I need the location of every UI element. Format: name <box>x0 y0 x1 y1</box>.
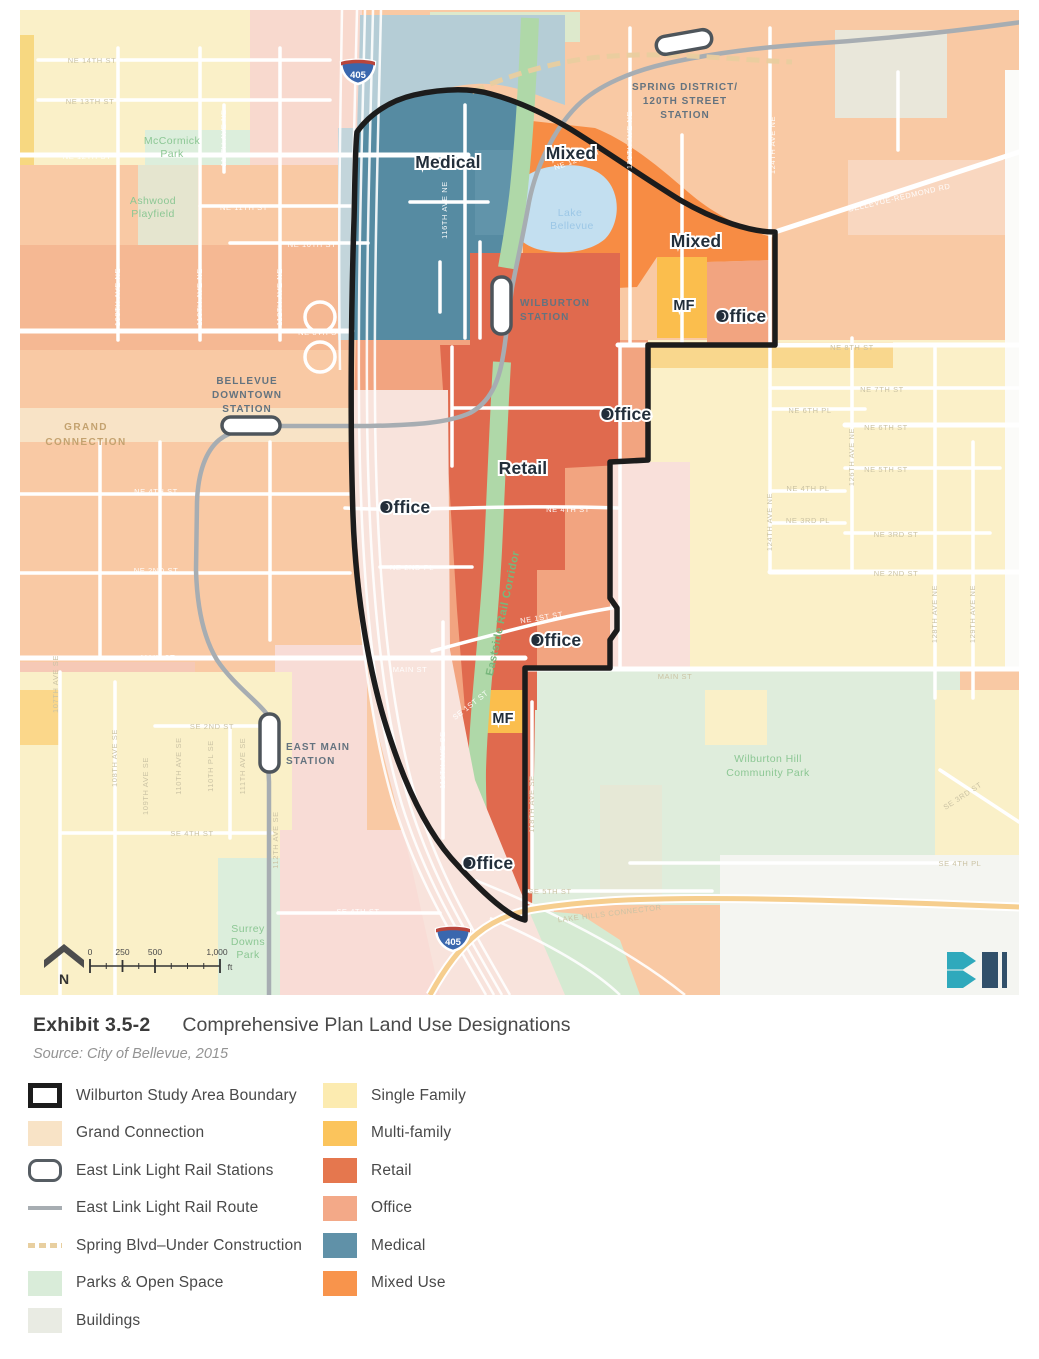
legend-label: Multi-family <box>371 1124 451 1142</box>
park-label: Downs <box>231 936 265 948</box>
legend-item-stations: East Link Light Rail Stations <box>28 1158 302 1183</box>
legend-swatch-grand-connection <box>28 1121 62 1146</box>
street-label: 108TH AVE NE <box>113 268 122 326</box>
station-label: STATION <box>520 312 569 323</box>
street-label: 116TH AVE NE <box>440 181 449 239</box>
street-label: 129TH AVE NE <box>968 585 977 643</box>
legend-label: Retail <box>371 1162 412 1180</box>
legend-item-office: Office <box>323 1196 466 1221</box>
legend-swatch-station <box>28 1159 62 1182</box>
park-label: Community Park <box>726 767 810 779</box>
legend-label: Single Family <box>371 1087 466 1105</box>
street-label: NE 11TH ST <box>220 203 268 212</box>
park-label: Playfield <box>131 208 174 220</box>
legend-swatch-retail <box>323 1158 357 1183</box>
park-label: Park <box>236 949 260 961</box>
street-label: 110TH AVE NE <box>195 268 204 326</box>
legend-swatch-buildings <box>28 1308 62 1333</box>
street-label: 118TH AVE SE <box>527 775 536 832</box>
grand-connection-label: CONNECTION <box>45 437 126 448</box>
street-label: NE 12TH ST <box>63 152 112 161</box>
street-label: NE 6TH ST <box>864 423 908 432</box>
street-label: SE 5TH ST <box>528 887 571 896</box>
legend-swatch-medical <box>323 1233 357 1258</box>
figure-caption: Exhibit 3.5-2 Comprehensive Plan Land Us… <box>33 1014 570 1037</box>
street-label: 124TH AVE NE <box>768 116 777 174</box>
street-label: NE 4TH ST <box>134 487 178 496</box>
station-label: STATION <box>286 756 335 767</box>
legend-swatch-multi-family <box>323 1121 357 1146</box>
street-label: SE 4TH ST <box>336 907 379 916</box>
shield-number: 405 <box>350 70 367 81</box>
legend-item-parks: Parks & Open Space <box>28 1271 302 1296</box>
east-main-station-marker <box>260 714 279 772</box>
park-label: Ashwood <box>130 195 176 207</box>
street-label: 110TH AVE SE <box>174 737 183 794</box>
street-label: MAIN ST <box>141 653 176 662</box>
source-note: Source: City of Bellevue, 2015 <box>33 1046 228 1062</box>
station-label: BELLEVUE <box>216 376 277 387</box>
park-label: Surrey <box>231 923 265 935</box>
street-label: 124TH AVE NE <box>765 493 774 551</box>
park-label: Park <box>160 148 184 160</box>
legend-item-single-family: Single Family <box>323 1083 466 1108</box>
scale-tick: 0 <box>88 947 93 957</box>
station-label: EAST MAIN <box>286 742 350 753</box>
grand-connection-label: GRAND <box>64 422 108 433</box>
street-label: 112TH AVE SE <box>271 811 280 868</box>
station-label: 120TH STREET <box>643 96 727 107</box>
legend-label: Buildings <box>76 1312 140 1330</box>
street-label: NE 13TH ST <box>66 97 115 106</box>
street-label: 111TH AVE NE <box>219 109 228 166</box>
wilburton-station-marker <box>492 277 511 334</box>
legend-label: Parks & Open Space <box>76 1274 224 1292</box>
shield-number: 405 <box>445 937 462 948</box>
station-label: DOWNTOWN <box>212 390 282 401</box>
street-label: SE 4TH PL <box>939 859 982 868</box>
legend-label: Office <box>371 1199 412 1217</box>
street-label: NE 3RD PL <box>786 516 830 525</box>
street-label: NE 10TH ST <box>288 240 337 249</box>
street-label: 112TH AVE NE <box>275 268 284 326</box>
station-label: STATION <box>222 404 271 415</box>
legend-column-symbols: Wilburton Study Area Boundary Grand Conn… <box>28 1083 302 1333</box>
legend-swatch-rail-route <box>28 1196 62 1221</box>
legend-swatch-single-family <box>323 1083 357 1108</box>
street-label: 107TH AVE SE <box>51 655 60 713</box>
scale-tick: 1,000 <box>206 947 228 957</box>
street-label: MAIN ST <box>393 665 428 674</box>
street-label: NE 6TH PL <box>788 406 831 415</box>
legend-item-retail: Retail <box>323 1158 466 1183</box>
legend-label: East Link Light Rail Stations <box>76 1162 274 1180</box>
legend-item-multi-family: Multi-family <box>323 1121 466 1146</box>
street-label: NE 4TH ST <box>546 505 590 514</box>
station-label: SPRING DISTRICT/ <box>632 82 738 93</box>
scale-tick: 500 <box>148 947 162 957</box>
land-use-label-mixed: Mixed <box>546 143 596 163</box>
legend-item-rail-route: East Link Light Rail Route <box>28 1196 302 1221</box>
land-use-map: NE 14TH ST NE 13TH ST NE 12TH ST 111TH A… <box>20 10 1019 995</box>
street-label: NE 3RD ST <box>874 530 919 539</box>
legend-item-grand-connection: Grand Connection <box>28 1121 302 1146</box>
street-label: 116TH AVE SE <box>438 731 447 788</box>
legend-label: Spring Blvd–Under Construction <box>76 1237 302 1255</box>
map-canvas: NE 14TH ST NE 13TH ST NE 12TH ST 111TH A… <box>20 10 1019 995</box>
legend-item-mixed-use: Mixed Use <box>323 1271 466 1296</box>
land-use-label-medical: Medical <box>415 152 480 172</box>
street-label: 110TH PL SE <box>206 740 215 792</box>
street-label: NE 5TH ST <box>864 465 908 474</box>
legend-swatch-parks <box>28 1271 62 1296</box>
legend-label: Grand Connection <box>76 1124 204 1142</box>
legend-label: Mixed Use <box>371 1274 446 1292</box>
land-use-label-mf: MF <box>673 298 694 314</box>
exhibit-number: Exhibit 3.5-2 <box>33 1014 150 1037</box>
street-label: NE 7TH ST <box>860 385 904 394</box>
legend-item-boundary: Wilburton Study Area Boundary <box>28 1083 302 1108</box>
lake-label: Bellevue <box>550 220 594 232</box>
scale-unit: ft <box>228 962 233 972</box>
legend-item-spring-blvd: Spring Blvd–Under Construction <box>28 1233 302 1258</box>
station-label: WILBURTON <box>520 298 590 309</box>
lake-label: Lake <box>558 207 582 219</box>
street-label: NE 2ND PL <box>390 563 434 572</box>
street-label: NE 8TH ST <box>298 328 342 337</box>
legend-swatch-office <box>323 1196 357 1221</box>
street-label: NE 2ND ST <box>874 569 919 578</box>
street-label: MAIN ST <box>658 672 693 681</box>
street-label: 126TH AVE NE <box>847 428 856 486</box>
land-use-label-mf: MF <box>492 711 513 727</box>
legend-swatch-boundary <box>28 1083 62 1108</box>
legend-column-land-use: Single Family Multi-family Retail Office… <box>323 1083 466 1296</box>
park-label: Wilburton Hill <box>734 753 802 765</box>
north-label: N <box>59 971 69 987</box>
scale-tick: 250 <box>115 947 129 957</box>
legend-item-buildings: Buildings <box>28 1308 302 1333</box>
land-use-label-mixed: Mixed <box>671 231 721 251</box>
bellevue-downtown-station-marker <box>222 417 280 434</box>
legend-swatch-spring-blvd <box>28 1243 62 1248</box>
street-label: NE 8TH ST <box>830 343 874 352</box>
street-label: 120TH AVE NE <box>625 111 634 169</box>
legend-swatch-mixed-use <box>323 1271 357 1296</box>
street-label: 108TH AVE SE <box>110 729 119 787</box>
street-label: 111TH AVE SE <box>238 738 247 795</box>
figure-title: Comprehensive Plan Land Use Designations <box>182 1014 570 1037</box>
legend-label: East Link Light Rail Route <box>76 1199 258 1217</box>
street-label: SE 4TH ST <box>170 829 213 838</box>
street-label: 109TH AVE SE <box>141 757 150 815</box>
street-label: 128TH AVE NE <box>930 585 939 643</box>
figure-page: NE 14TH ST NE 13TH ST NE 12TH ST 111TH A… <box>0 0 1039 1359</box>
land-use-label-retail: Retail <box>499 458 548 478</box>
station-label: STATION <box>660 110 709 121</box>
legend-label: Wilburton Study Area Boundary <box>76 1087 297 1105</box>
legend-label: Medical <box>371 1237 426 1255</box>
street-label: NE 14TH ST <box>68 56 117 65</box>
park-label: McCormick <box>144 135 201 147</box>
street-label: NE 2ND ST <box>134 566 179 575</box>
street-label: SE 2ND ST <box>190 722 234 731</box>
street-label: NE 4TH PL <box>786 484 829 493</box>
legend-item-medical: Medical <box>323 1233 466 1258</box>
